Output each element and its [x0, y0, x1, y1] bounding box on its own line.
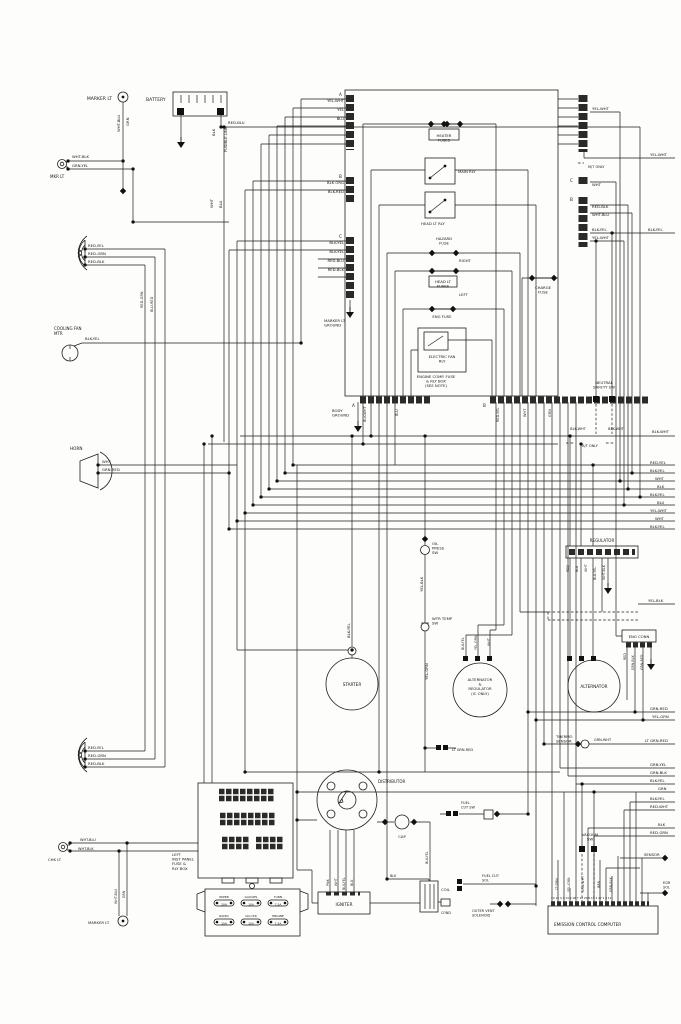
wire-label-28: BLK-YEL [329, 240, 344, 245]
wire-label-58: BLK-WHT [363, 406, 367, 422]
outer-vent-solenoid-label: OUTER VENTSOLENOID [472, 909, 495, 917]
wire-label-12: RED-YEL [88, 243, 105, 248]
emission-control-computer [548, 904, 658, 935]
wire-label-18: WHT [102, 459, 112, 464]
fuse-gauges-label: GAUGES [245, 895, 258, 899]
wire-label-53: YEL-WHT [592, 235, 610, 240]
wire-label-23: BLU [337, 116, 345, 121]
marker-lt-top-label: MARKER LT [87, 96, 112, 102]
thermo-sensor [575, 740, 589, 748]
engine-fuse [429, 306, 456, 312]
wire-label-14: RED-BLK [88, 259, 105, 264]
wire-label-59: BLU [395, 409, 399, 416]
water-temp-switch [421, 623, 429, 631]
egr-solenoid [662, 890, 668, 896]
wire-label-87: YEL-GRN [424, 663, 429, 680]
wire-label-105: GRN-YEL [650, 762, 667, 767]
wire-label-46: M/T ONLY [588, 165, 605, 169]
wires-battery [181, 115, 640, 497]
wire-label-25: BLK ORG [327, 180, 344, 185]
wire-label-91: BLK-YEL [461, 637, 465, 650]
wire-label-16: BLK-YEL [85, 336, 100, 341]
wire-label-69: BLK-YEL [650, 468, 665, 473]
wire-label-47: C [570, 178, 573, 183]
wire-label-10: WHT [209, 198, 214, 208]
wire-label-120: GRN-BLK [609, 877, 613, 892]
outer-vent-solenoid [497, 901, 511, 907]
wire-label-6: WHT-BLU [116, 115, 121, 132]
cond-label: COND [441, 911, 451, 915]
wire-label-152: WHT-BLK [78, 847, 94, 851]
wire-label-29: BLK-YEL [329, 249, 344, 254]
fuse-engine-label: ENGINE [272, 914, 284, 918]
wire-label-143: 7.5A [275, 903, 283, 907]
wire-label-44: YEL-WHT [592, 106, 610, 111]
wire-label-83: BLU-YEL [593, 567, 597, 580]
headlight-relay [425, 192, 455, 218]
neutral-safety-sw-label: NEUTRALSAFETY SW [593, 380, 615, 390]
wire-label-80: RED [566, 565, 570, 572]
wire-label-51: WHT-BLU [592, 212, 609, 217]
fuel-cut-switch [446, 810, 500, 819]
marker-light-bottom [118, 916, 128, 926]
cap-label: CAP [398, 834, 406, 839]
engine-comp-box-label: ENGINE COMP. FUSE& RLY BOX(SEE NOTE) [417, 374, 456, 388]
igniter-label: IGNITER [336, 902, 353, 907]
electric-fan-relay-label: ELECTRIC FANRLY [429, 354, 456, 364]
egr-sol-label: EGRSOL [663, 881, 671, 889]
wire-label-126: WHT [334, 877, 338, 886]
wire-label-149: 7.5A [275, 922, 283, 926]
headlight-relay-label: HEAD LT RLY [421, 221, 445, 226]
alt-regulator-label: ALTERNATOR&REGULATOR(IC ONLY) [468, 677, 493, 696]
wires-right-strip [558, 99, 675, 636]
wire-label-96: RED [623, 653, 627, 660]
ignition-coil [420, 881, 450, 912]
inst-panel-box-label: LEFTINST PANELFUSE &RLY BOX [172, 852, 195, 871]
wire-label-2: WHT-BLK [72, 154, 90, 159]
wire-label-116: LT GRN [555, 878, 559, 890]
wire-label-45: YEL-WHT [650, 152, 668, 157]
wire-label-128: BLK [350, 879, 354, 886]
cooling-fan-motor [62, 345, 78, 361]
wire-label-158: RED-BLK [88, 761, 105, 766]
wire-label-3: GRN-YEL [72, 163, 89, 168]
wire-label-70: WHT [655, 476, 665, 481]
marker-lt-ground-label: MARKER LTGROUND [324, 318, 346, 328]
wire-label-73: BLU [657, 500, 665, 505]
engine-fuse-label: ENG FUSE [432, 314, 452, 319]
horn-label: HORN [70, 446, 83, 451]
lt-grn-red-switch [436, 745, 448, 750]
wire-label-106: GRN-BLK [650, 770, 667, 775]
wire-label-110: RED-WHT [650, 804, 669, 809]
wire-label-127: BLK-YEL [342, 877, 346, 890]
sensor-connector [662, 855, 668, 861]
fuse-cig-ltr-label: CIG LTR [245, 914, 256, 918]
cooling-fan-label: COOLING FANMTR [54, 326, 82, 336]
wire-label-98: GRN-RED [640, 654, 644, 670]
wire-label-27: C [339, 234, 342, 239]
wire-label-102: GRN-WHT [594, 738, 612, 742]
wire-label-125: PNK [326, 879, 330, 886]
starter-label: STARTER [343, 682, 362, 687]
main-relay-label: MAIN RLY [458, 169, 476, 174]
wire-label-76: BLK-YEL [650, 524, 665, 529]
wire-label-145: 15A [221, 922, 228, 926]
regulator-label: REGULATOR [590, 538, 615, 543]
wire-label-72: BLK-YEL [650, 492, 665, 497]
wire-label-88: BLK-YEL [346, 623, 351, 638]
mkr-lt-label: MKR LT [50, 174, 65, 179]
wire-label-22: YEL [337, 107, 345, 112]
wire-label-31: RED-BLK [328, 267, 345, 272]
wire-label-21: YEL-WHT [327, 98, 345, 103]
wire-label-67: BLK-WHT [652, 429, 670, 434]
water-temp-sw-label: WTR TEMPSW [432, 616, 453, 626]
distributor-label: DISTRIBUTOR [378, 779, 405, 784]
condenser [441, 899, 450, 906]
wire-label-119: BRN [597, 880, 601, 888]
wire-label-130: BLK [390, 874, 397, 878]
fuse-radio-label: RADIO [219, 914, 229, 918]
charge-fuse-label: CHARGEFUSE [535, 285, 552, 295]
fuel-cut-solenoid [457, 879, 462, 891]
battery-label: BATTERY [146, 97, 166, 103]
wire-label-78: YEL-BLK [419, 576, 424, 592]
charge-fuse [529, 275, 557, 281]
wire-label-52: BLK-YEL [592, 227, 607, 232]
wires-bus-horizontals [208, 436, 675, 529]
heater-fuses-label: HEATERFUSES [437, 133, 452, 143]
wire-label-75: WHT [655, 516, 665, 521]
alternator-label: ALTERNATOR [580, 684, 607, 689]
marker-lt-bottom-label: MARKER LT [88, 920, 110, 925]
oil-pressure-switch [421, 536, 430, 555]
wires-top-bundle [229, 99, 346, 772]
fuel-cut-sw-label: FUELCUT SW [461, 801, 475, 809]
wire-label-65: BLK-WHT [608, 427, 624, 431]
wire-label-85: YEL-BLK [648, 598, 664, 603]
wire-label-131: BLK-YEL [425, 851, 429, 864]
wire-label-82: WHT [584, 563, 588, 572]
wire-label-54: BLK-YEL [648, 227, 663, 232]
wire-label-68: RED-YEL [650, 460, 667, 465]
chk-lt-label: CHK LT [48, 857, 62, 862]
fuel-cut-sol-label: FUEL CUTSOL [482, 874, 500, 882]
wire-label-155: GRN [122, 890, 126, 898]
sensor-label: SENSOR [644, 852, 660, 857]
wire-label-139: 20A [221, 903, 228, 907]
wire-label-26: BLK-RED [328, 189, 344, 194]
wire-label-109: BLK-YEL [650, 796, 665, 801]
coil-label: COIL [441, 887, 451, 892]
wire-label-160: BLU-RED [150, 296, 154, 312]
distributor [317, 770, 377, 830]
wire-label-13: RED-GRN [88, 251, 106, 256]
wire-label-71: BLK [657, 484, 665, 489]
inst-panel-fuse-relay-box [198, 783, 293, 889]
wire-label-107: BLK-YEL [650, 778, 665, 783]
wire-label-61: WHT [523, 408, 527, 417]
eng-conn-label: ENG CONN [629, 634, 650, 639]
wire-label-60: RED-YEL [496, 407, 500, 422]
wire-label-156: RED-YEL [88, 745, 105, 750]
wire-label-154: WHT-BLU [114, 889, 118, 904]
wire-label-103: LT GRN-RED [645, 738, 668, 743]
wire-label-11: BLU [218, 200, 223, 208]
wire-label-93: WHT [487, 637, 491, 646]
wire-label-30: RED-BLU [327, 258, 344, 263]
thermo-sensor-label: THERMOSENSOR [555, 734, 572, 744]
wire-label-20: A [339, 92, 342, 97]
wire-label-24: B [339, 174, 342, 179]
wire-label-99: GRN-RED [650, 706, 668, 711]
wire-label-151: WHT-BLU [80, 838, 96, 842]
wire-label-118: GRN-WHT [581, 875, 585, 892]
diagram-labels: MARKER LTMKR LTWHT-BLKGRN-YELBATTERYRED-… [48, 92, 671, 927]
wire-label-117: YEL-GRN [567, 877, 571, 892]
oil-press-sw-label: OILPRESSSW [432, 541, 445, 555]
computer-pin-numbers: 10 15 4 3 14 9 18 7 12 20 5 13 2 17 1 8 … [551, 896, 612, 900]
wire-label-141: 10A [248, 903, 255, 907]
wire-label-159: RED-GRN [140, 291, 144, 308]
emission-computer-label: EMISSION CONTROL COMPUTER [554, 922, 621, 927]
wire-label-5: RED-BLU [228, 120, 245, 125]
hazard-fuse-label: HAZARDFUSE [436, 236, 452, 246]
wire-label-111: BLK [658, 822, 666, 827]
wire-label-64: BLK-WHT [570, 427, 586, 431]
fuse-turn-label: TURN [273, 895, 282, 899]
vacuum-sw-label: VACUUMSW [582, 832, 598, 842]
body-ground-label: BODYGROUND [332, 408, 349, 418]
hazard-fuse [429, 250, 459, 256]
wire-label-100: YEL-GRN [652, 714, 669, 719]
wire-label-84: WHT-BLK [602, 564, 606, 580]
wire-label-66: A/T ONLY [582, 444, 599, 448]
fuse-wiper-label: WIPER [219, 895, 229, 899]
wire-label-97: GRN-BLK [631, 655, 635, 670]
wire-label-92: YEL-GRN [474, 635, 478, 650]
wire-label-19: GRN-RED [102, 467, 120, 472]
wiring-diagram-page: MARKER LTMKR LTWHT-BLKGRN-YELBATTERYRED-… [0, 0, 681, 1024]
main-relay [425, 158, 455, 184]
wiring-diagram-canvas: MARKER LTMKR LTWHT-BLKGRN-YELBATTERYRED-… [0, 0, 681, 1024]
wire-label-49: B [570, 197, 573, 202]
wire-label-8: BLK [211, 128, 216, 136]
wire-label-157: RED-GRN [88, 753, 106, 758]
wire-label-37: RIGHT [459, 258, 472, 263]
wire-label-74: YEL-WHT [650, 508, 668, 513]
wire-label-48: WHT [592, 182, 602, 187]
wire-label-81: BLU [575, 565, 579, 572]
check-light-connector [59, 843, 71, 852]
wire-label-147: 15A [248, 922, 255, 926]
wire-label-108: GRN [658, 786, 667, 791]
wire-label-62: GRN [548, 409, 552, 417]
wire-label-104: LT GRN-RED [452, 748, 473, 752]
wire-label-112: RED-GRN [650, 830, 668, 835]
wire-label-50: RED-BLK [592, 204, 609, 209]
wire-label-39: LEFT [459, 292, 469, 297]
wire-label-7: GRN [125, 117, 130, 126]
wire-label-56: B [483, 403, 486, 408]
wire-label-9: FUSIBLE LINK [223, 126, 228, 152]
wire-label-55: A [352, 403, 355, 408]
electric-fan-relay [418, 328, 466, 372]
